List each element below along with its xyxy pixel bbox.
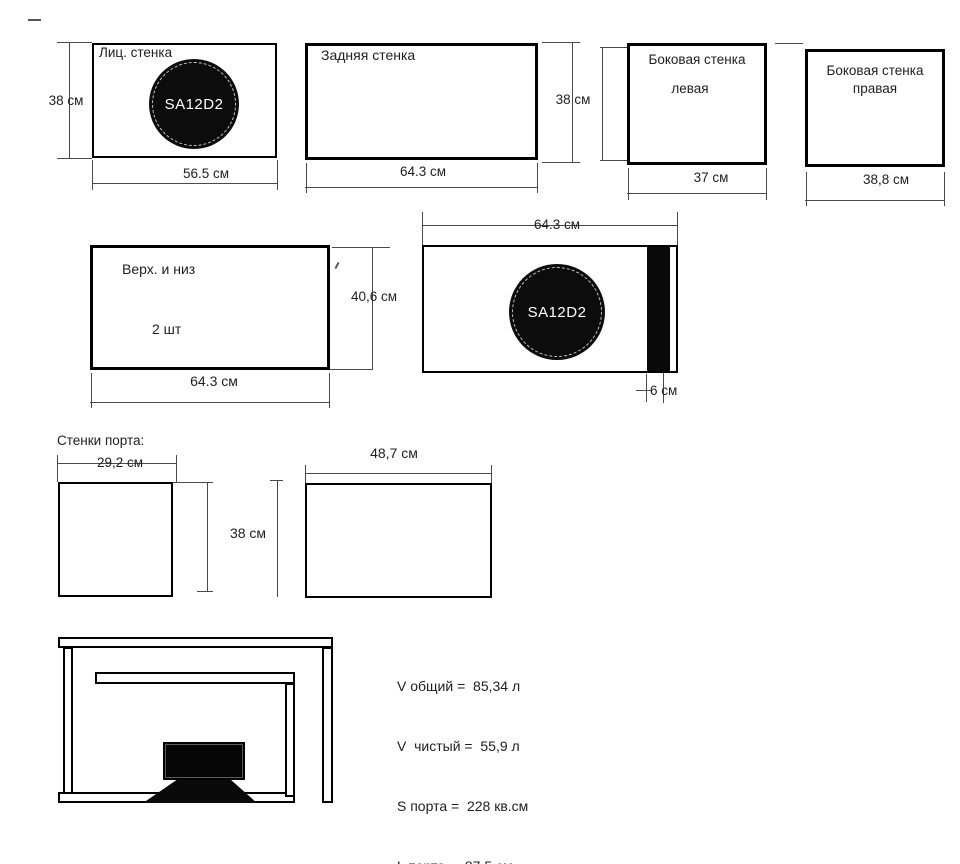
spec-line-l-port: L порта = 87,5 см [397,856,567,864]
port-wall2-width-label: 48,7 см [358,446,430,461]
top-bottom-qty: 2 шт [152,321,181,337]
section-driver-cone [143,779,257,803]
driver-model-label: SA12D2 [528,304,587,321]
port-wall1-height-tick-top [173,482,213,483]
stray-mark-top-left [28,19,41,21]
side-right-width-dim-line [805,200,945,201]
section-inner-port-wall-horizontal [95,672,295,684]
face-width-dim-line [92,183,277,184]
top-bottom-width-tick-right [329,373,330,408]
port-walls-height-label: 38 см [222,526,274,541]
section-left-wall [63,647,73,803]
specs-block: V общий = 85,34 л V чистый = 55,9 л S по… [397,636,567,864]
port-wall1-width-tick-right [176,455,177,482]
assembly-width-label: 64.3 см [521,217,593,232]
assembly-width-tick-right [677,212,678,245]
driver-model-label: SA12D2 [165,96,224,113]
section-driver-magnet [163,742,245,780]
stray-line-between-panels [775,43,803,44]
assembly-port-slot [647,247,670,371]
face-height-label: 38 см [40,93,92,108]
section-top-wall [58,637,333,648]
top-bottom-width-label: 64.3 см [178,374,250,389]
spec-line-v-net: V чистый = 55,9 л [397,736,567,756]
back-height-dim-tick-bottom [542,162,580,163]
face-driver-circle: SA12D2 [149,59,239,149]
back-width-dim-line [305,187,538,188]
assembly-width-tick-left [422,212,423,245]
top-bottom-height-label: 40,6 см [345,289,403,304]
face-panel-title: Лиц. стенка [99,45,172,61]
port-wall2-width-tick-right [491,465,492,484]
back-height-dim-tick-top [542,42,580,43]
port-wall1-rect [58,482,173,597]
face-width-dim-tick-left [92,160,93,190]
top-bottom-height-tick-top [332,247,390,248]
side-left-width-tick-right [766,168,767,200]
side-right-width-tick-right [944,172,945,206]
side-left-dim-line [602,47,603,160]
port-wall2-width-dim-line [305,473,492,474]
side-left-dim-tick-top [600,47,627,48]
spec-line-v-total: V общий = 85,34 л [397,676,567,696]
side-left-width-label: 37 см [683,170,739,185]
section-inner-port-wall-vertical [285,683,295,797]
port-wall2-height-tick-top [270,480,283,481]
back-width-dim-tick-left [306,163,307,193]
port-wall1-width-tick-left [57,455,58,482]
port-wall1-width-label: 29,2 см [88,455,152,470]
back-width-dim-tick-right [537,163,538,193]
top-bottom-height-tick-bottom [330,369,372,370]
side-left-title-line2: левая [630,81,750,97]
top-bottom-title: Верх. и низ [122,261,195,277]
speaker-box-blueprint: Лиц. стенка SA12D2 38 см 56.5 см Задняя … [0,0,960,864]
side-right-title-line1: Боковая стенка [808,63,942,79]
side-right-title-line2: правая [808,81,942,97]
face-width-label: 56.5 см [170,166,242,181]
side-right-width-tick-left [806,172,807,206]
stray-tick-mark [334,262,339,269]
top-bottom-height-dim-line [372,247,373,370]
face-height-dim-tick-top [57,42,92,43]
side-left-dim-tick-bottom [600,160,627,161]
port-walls-heading: Стенки порта: [57,433,144,449]
side-right-width-label: 38,8 см [850,172,922,187]
face-height-dim-tick-bottom [57,158,92,159]
top-bottom-width-dim-line [90,402,330,403]
port-wall1-height-dim-line [207,482,208,592]
back-height-label: 38 см [548,92,598,107]
face-width-dim-tick-right [277,160,278,190]
port-wall2-width-tick-left [305,465,306,484]
spec-line-s-port: S порта = 228 кв.см [397,796,567,816]
top-bottom-width-tick-left [91,373,92,408]
side-left-width-dim-line [627,193,767,194]
port-wall2-rect [305,483,492,598]
port-width-tick-left [646,374,647,402]
back-panel-title: Задняя стенка [321,47,415,63]
back-width-label: 64.3 см [387,164,459,179]
port-width-label: 6 см [650,383,677,398]
side-left-width-tick-left [628,168,629,200]
port-wall2-height-dim-line [277,480,278,597]
section-right-wall [322,647,333,803]
assembly-driver-circle: SA12D2 [509,264,605,360]
port-wall1-height-tick-bottom [197,591,213,592]
side-left-title-line1: Боковая стенка [630,52,764,68]
